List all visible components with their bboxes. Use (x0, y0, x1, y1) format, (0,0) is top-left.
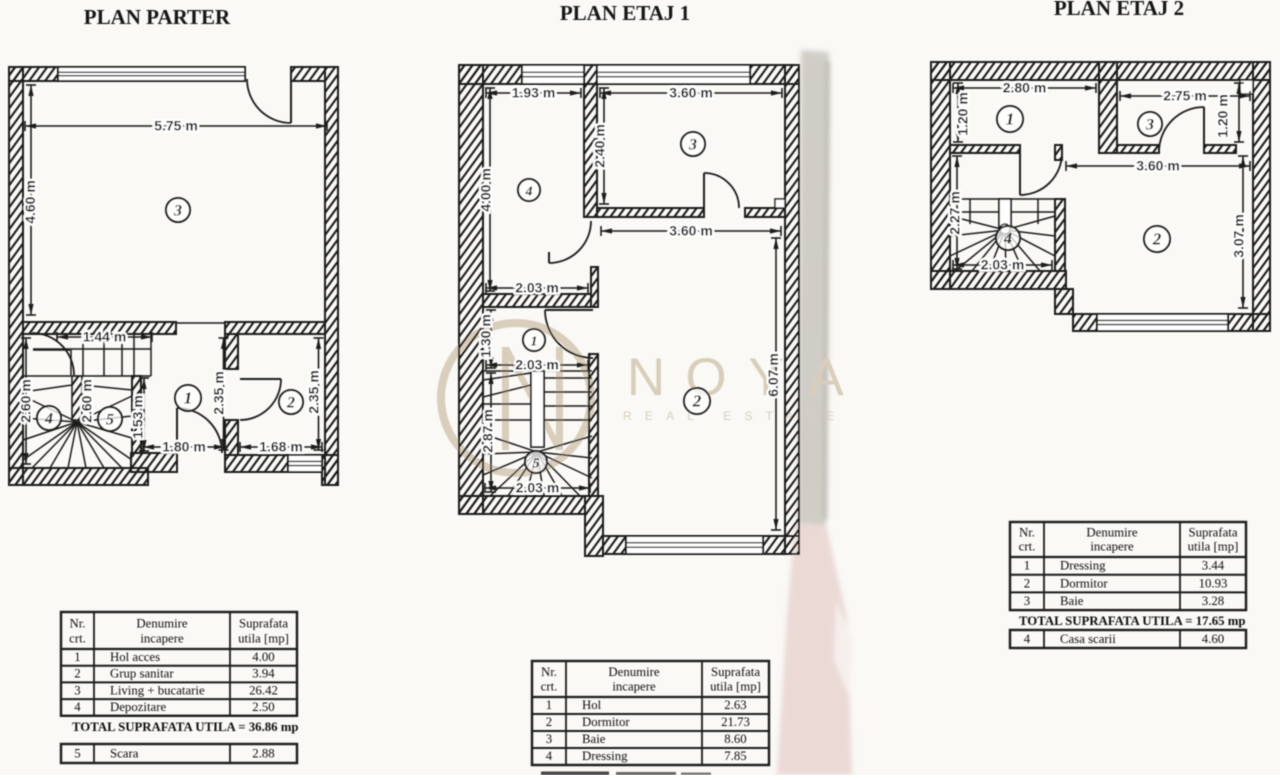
svg-text:Scara: Scara (110, 747, 139, 761)
svg-text:7.85: 7.85 (724, 749, 746, 763)
svg-text:crt.: crt. (69, 631, 86, 645)
svg-text:2.60 m: 2.60 m (18, 379, 34, 423)
svg-text:Baie: Baie (582, 732, 606, 746)
svg-text:Casa scarii: Casa scarii (1060, 632, 1116, 646)
svg-text:2: 2 (1152, 230, 1162, 249)
svg-text:2.75 m: 2.75 m (1163, 88, 1207, 104)
svg-text:3: 3 (1145, 117, 1154, 134)
svg-text:4.60 m: 4.60 m (22, 180, 38, 224)
svg-text:3: 3 (546, 732, 552, 746)
svg-text:4.00: 4.00 (252, 650, 274, 664)
svg-text:2.50: 2.50 (252, 700, 274, 714)
svg-text:Depozitare: Depozitare (110, 700, 166, 714)
svg-text:Suprafata: Suprafata (239, 617, 288, 631)
svg-text:TOTAL SUPRAFATA UTILA = 17.65: TOTAL SUPRAFATA UTILA = 17.65 mp (1019, 614, 1246, 628)
svg-text:5: 5 (106, 412, 114, 429)
svg-text:Denumire: Denumire (136, 617, 187, 631)
svg-text:2.88: 2.88 (252, 747, 274, 761)
svg-text:26.42: 26.42 (249, 683, 278, 697)
svg-text:2.60 m: 2.60 m (79, 379, 95, 423)
svg-text:4: 4 (1024, 632, 1031, 646)
svg-text:1: 1 (74, 650, 80, 664)
svg-text:3: 3 (688, 137, 697, 154)
svg-text:5: 5 (533, 457, 540, 472)
svg-text:4.00 m: 4.00 m (478, 168, 494, 212)
svg-text:5: 5 (74, 747, 80, 761)
svg-text:incapere: incapere (1090, 540, 1134, 554)
svg-text:2.03 m: 2.03 m (516, 480, 560, 496)
svg-text:3.94: 3.94 (252, 667, 275, 681)
svg-text:3.60 m: 3.60 m (669, 223, 713, 239)
svg-text:Living + bucatarie: Living + bucatarie (110, 683, 205, 697)
svg-text:2.80 m: 2.80 m (1003, 80, 1047, 96)
svg-text:4: 4 (525, 185, 533, 200)
svg-text:2: 2 (1024, 576, 1030, 590)
svg-text:Baie: Baie (1060, 594, 1084, 608)
svg-text:1.68 m: 1.68 m (259, 439, 303, 455)
svg-text:2: 2 (546, 715, 552, 729)
svg-text:3: 3 (1024, 594, 1030, 608)
svg-text:Denumire: Denumire (1086, 526, 1137, 540)
svg-text:2.03 m: 2.03 m (981, 257, 1025, 273)
svg-text:4.60: 4.60 (1202, 632, 1224, 646)
svg-text:4: 4 (44, 411, 53, 428)
svg-text:PLAN ETAJ 2: PLAN ETAJ 2 (1054, 0, 1184, 20)
svg-text:1: 1 (184, 389, 193, 408)
svg-text:incapere: incapere (140, 631, 184, 645)
svg-text:Denumire: Denumire (608, 665, 659, 679)
svg-text:Suprafata: Suprafata (711, 665, 760, 679)
svg-text:1.20 m: 1.20 m (1215, 94, 1231, 138)
svg-text:1.53 m: 1.53 m (130, 395, 146, 439)
svg-text:Dormitor: Dormitor (1060, 576, 1108, 590)
svg-text:2.40 m: 2.40 m (592, 124, 608, 168)
svg-text:2.03 m: 2.03 m (515, 357, 559, 373)
svg-text:2: 2 (286, 395, 295, 412)
svg-text:Hol: Hol (582, 698, 602, 712)
svg-text:3.44: 3.44 (1202, 559, 1225, 573)
svg-text:Nr.: Nr. (70, 617, 86, 631)
svg-text:2.27 m: 2.27 m (947, 191, 963, 235)
svg-text:Grup sanitar: Grup sanitar (110, 667, 174, 681)
svg-text:PLAN ETAJ 1: PLAN ETAJ 1 (560, 1, 690, 25)
svg-text:21.73: 21.73 (721, 715, 750, 729)
svg-text:2.87 m: 2.87 m (480, 409, 496, 453)
svg-text:1.30 m: 1.30 m (478, 314, 494, 358)
svg-text:A: A (808, 348, 844, 407)
svg-text:Dressing: Dressing (582, 749, 628, 763)
svg-text:5.75 m: 5.75 m (154, 118, 198, 134)
svg-text:1: 1 (531, 335, 538, 350)
svg-text:8.60: 8.60 (724, 732, 746, 746)
svg-text:3.07 m: 3.07 m (1231, 214, 1247, 258)
svg-text:3: 3 (173, 203, 182, 220)
svg-text:REAL ESTATE: REAL ESTATE (623, 409, 847, 423)
svg-text:Nr.: Nr. (541, 665, 557, 679)
svg-text:1.93 m: 1.93 m (512, 85, 556, 101)
svg-text:utila [mp]: utila [mp] (238, 631, 289, 645)
svg-text:4: 4 (546, 749, 553, 763)
svg-text:N: N (627, 348, 665, 407)
svg-text:Nr.: Nr. (1019, 526, 1035, 540)
svg-text:1.80 m: 1.80 m (162, 439, 206, 455)
svg-text:2.35 m: 2.35 m (306, 370, 322, 414)
svg-text:1: 1 (1024, 559, 1030, 573)
svg-text:4: 4 (1003, 231, 1012, 248)
svg-text:2: 2 (74, 667, 80, 681)
svg-text:incapere: incapere (612, 680, 656, 694)
svg-text:crt.: crt. (1019, 540, 1036, 554)
svg-text:Dressing: Dressing (1060, 559, 1106, 573)
svg-text:2.03 m: 2.03 m (515, 280, 559, 296)
svg-text:2.35 m: 2.35 m (211, 371, 227, 415)
svg-text:Hol acces: Hol acces (110, 650, 160, 664)
svg-text:3: 3 (74, 683, 80, 697)
svg-text:utila [mp]: utila [mp] (1188, 540, 1239, 554)
svg-text:TOTAL SUPRAFATA UTILA = 36.86: TOTAL SUPRAFATA UTILA = 36.86 mp (72, 720, 299, 734)
svg-text:3.60 m: 3.60 m (1136, 158, 1180, 174)
svg-text:2.63: 2.63 (724, 698, 746, 712)
svg-text:1.20 m: 1.20 m (955, 92, 971, 136)
svg-text:1.44 m: 1.44 m (83, 329, 127, 345)
svg-text:utila [mp]: utila [mp] (710, 680, 761, 694)
svg-text:crt.: crt. (541, 680, 558, 694)
svg-text:Dormitor: Dormitor (582, 715, 630, 729)
svg-text:PLAN PARTER: PLAN PARTER (84, 5, 231, 29)
svg-text:4: 4 (74, 700, 81, 714)
svg-text:3.28: 3.28 (1202, 594, 1224, 608)
svg-text:Suprafata: Suprafata (1188, 526, 1237, 540)
svg-text:10.93: 10.93 (1199, 576, 1228, 590)
svg-text:2: 2 (692, 392, 702, 411)
svg-text:1: 1 (1006, 110, 1015, 129)
svg-text:1: 1 (546, 698, 552, 712)
svg-text:3.60 m: 3.60 m (669, 85, 713, 101)
svg-text:6.07 m: 6.07 m (765, 353, 781, 397)
